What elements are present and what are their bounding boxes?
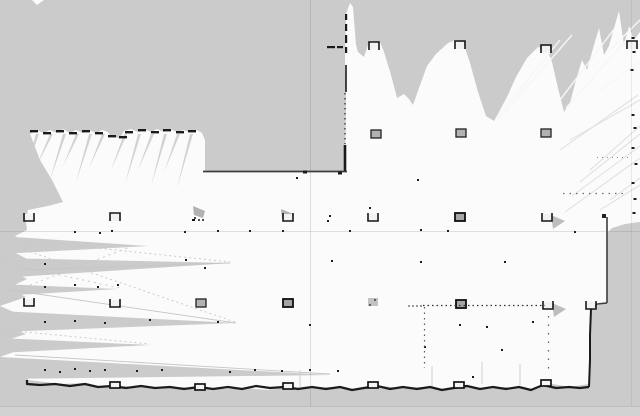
map-viewport[interactable] (0, 0, 640, 416)
occupancy-grid-map (0, 0, 640, 416)
canvas-footer (0, 407, 640, 416)
